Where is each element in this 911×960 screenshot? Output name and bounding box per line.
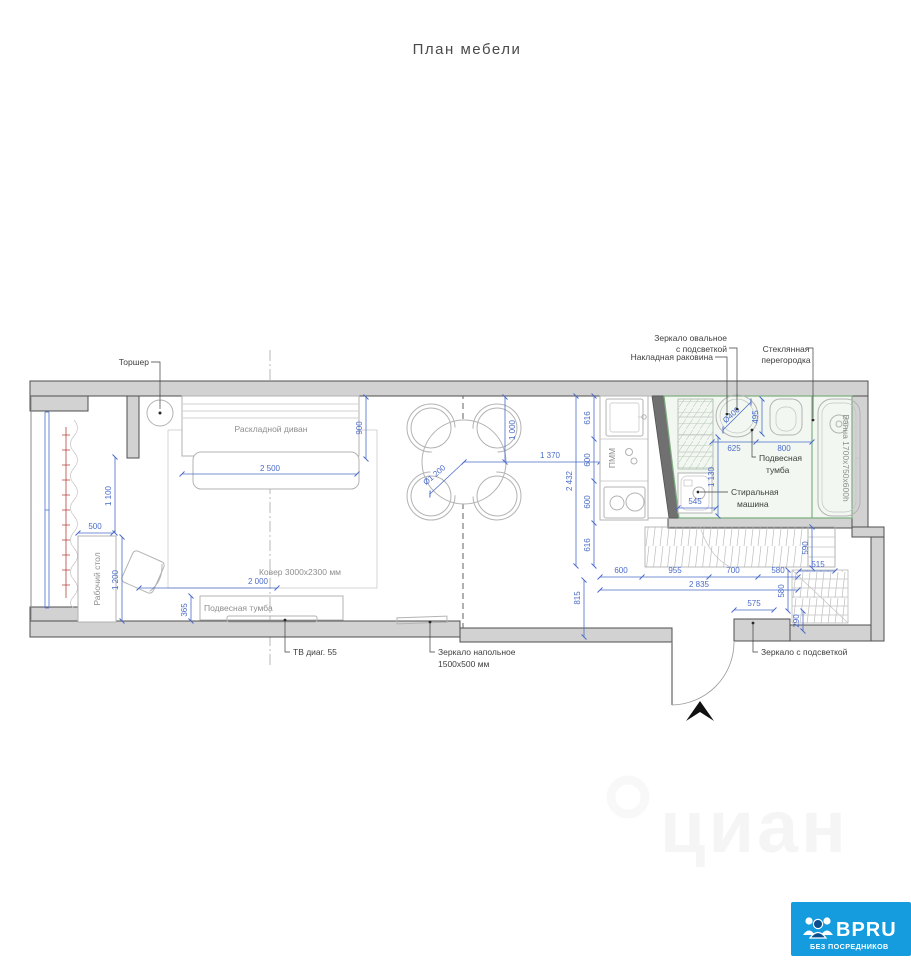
svg-text:625: 625 [727,444,741,453]
wall-bottom-mid [460,628,672,642]
desk-label: Рабочий стол [92,552,102,605]
bath-cabinet-label-1: Подвесная [759,453,802,463]
floor-mirror-label-2: 1500х500 мм [438,659,490,669]
watermark-text: циан [660,785,849,868]
svg-text:600: 600 [583,453,592,467]
dim-table-kitchen-text: 1 370 [540,451,561,460]
dim-desk-offset-text: 1 100 [104,485,113,506]
svg-text:815: 815 [573,591,582,605]
wall-top [30,381,868,396]
corridor-wardrobe [645,527,848,623]
wall-right-step [852,527,884,537]
svg-text:2 835: 2 835 [689,580,710,589]
svg-text:290: 290 [792,614,801,628]
bath-cabinet-label-2: тумба [766,465,790,475]
watermark-cian: циан [611,780,849,868]
bathtub-label: Ванна 1700х750х600h [841,414,851,502]
radiator [62,427,70,598]
wall-bottom-left [30,621,460,637]
svg-text:1 130: 1 130 [707,466,716,487]
wall-right-lower [871,537,884,641]
sofa: Раскладной диван [182,396,359,489]
wall-entry-mirror [734,619,790,641]
tv-cabinet-label: Подвесная тумба [204,603,273,613]
washer-label-1: Стиральная [731,487,779,497]
svg-text:616: 616 [583,411,592,425]
overlay-sink-label: Накладная раковина [631,352,714,362]
bathroom: Стиральная машина 545 1 130 Ø400 625 800… [664,395,861,518]
glass-partition-label-1: Стеклянная [763,344,810,354]
entry-mirror-label: Зеркало с подсветкой [761,647,848,657]
wardrobe-sliding [645,527,808,567]
floor-plan-canvas: План мебели циан Ковер 3000х2300 мм [0,0,911,960]
svg-text:495: 495 [751,410,760,424]
svg-text:955: 955 [668,566,682,575]
logo-name: BPRU [836,919,897,941]
dim-washer-text: 545 [688,497,702,506]
tv-label: ТВ диаг. 55 [293,647,337,657]
glass-partition-label-2: перегородка [761,355,811,365]
svg-text:2 432: 2 432 [565,470,574,491]
dining-area: Ø1 200 1 000 1 370 [407,397,600,520]
floor-lamp-label: Торшер [119,357,150,367]
curtain [71,420,78,608]
window-zone [45,412,49,608]
logo-tagline: БЕЗ ПОСРЕДНИКОВ [810,942,889,951]
bpru-logo[interactable]: BPRU БЕЗ ПОСРЕДНИКОВ [791,902,911,956]
svg-text:590: 590 [801,541,810,555]
entry-door [672,642,734,705]
svg-text:600: 600 [583,495,592,509]
svg-text:700: 700 [726,566,740,575]
svg-text:580: 580 [777,584,786,598]
kitchen-dim-chain: 616 600 600 616 2 432 815 [565,396,594,637]
svg-text:800: 800 [777,444,791,453]
washer-label-2: машина [737,499,769,509]
oval-mirror-label-1: Зеркало овальное [654,333,727,343]
svg-text:616: 616 [583,538,592,552]
svg-text:515: 515 [811,560,825,569]
dim-desk-width-text: 500 [88,522,102,531]
wall-bottom-right [790,625,884,641]
dim-table-wall-text: 1 000 [508,419,517,440]
dim-carpet-offset-text: 2 000 [248,577,269,586]
bathroom-shelves [678,399,713,469]
wall-column [127,396,139,458]
wall-left-top-stub [30,396,88,411]
svg-text:580: 580 [771,566,785,575]
floor-mirror-label-1: Зеркало напольное [438,647,516,657]
dim-sofa-width-text: 2 500 [260,464,281,473]
dim-sofa-depth-text: 900 [355,421,364,435]
page-title: План мебели [413,41,522,58]
sofa-label: Раскладной диван [235,424,308,434]
svg-text:575: 575 [747,599,761,608]
dim-tv-cabinet-depth-text: 365 [180,603,189,617]
dishwasher-label: ПММ [607,448,617,468]
dim-desk-length-text: 1 200 [111,569,120,590]
svg-text:600: 600 [614,566,628,575]
north-arrow-icon [686,701,714,721]
kitchen: ПММ 616 600 600 616 2 432 815 [565,396,669,637]
carpet-label: Ковер 3000х2300 мм [259,567,341,577]
